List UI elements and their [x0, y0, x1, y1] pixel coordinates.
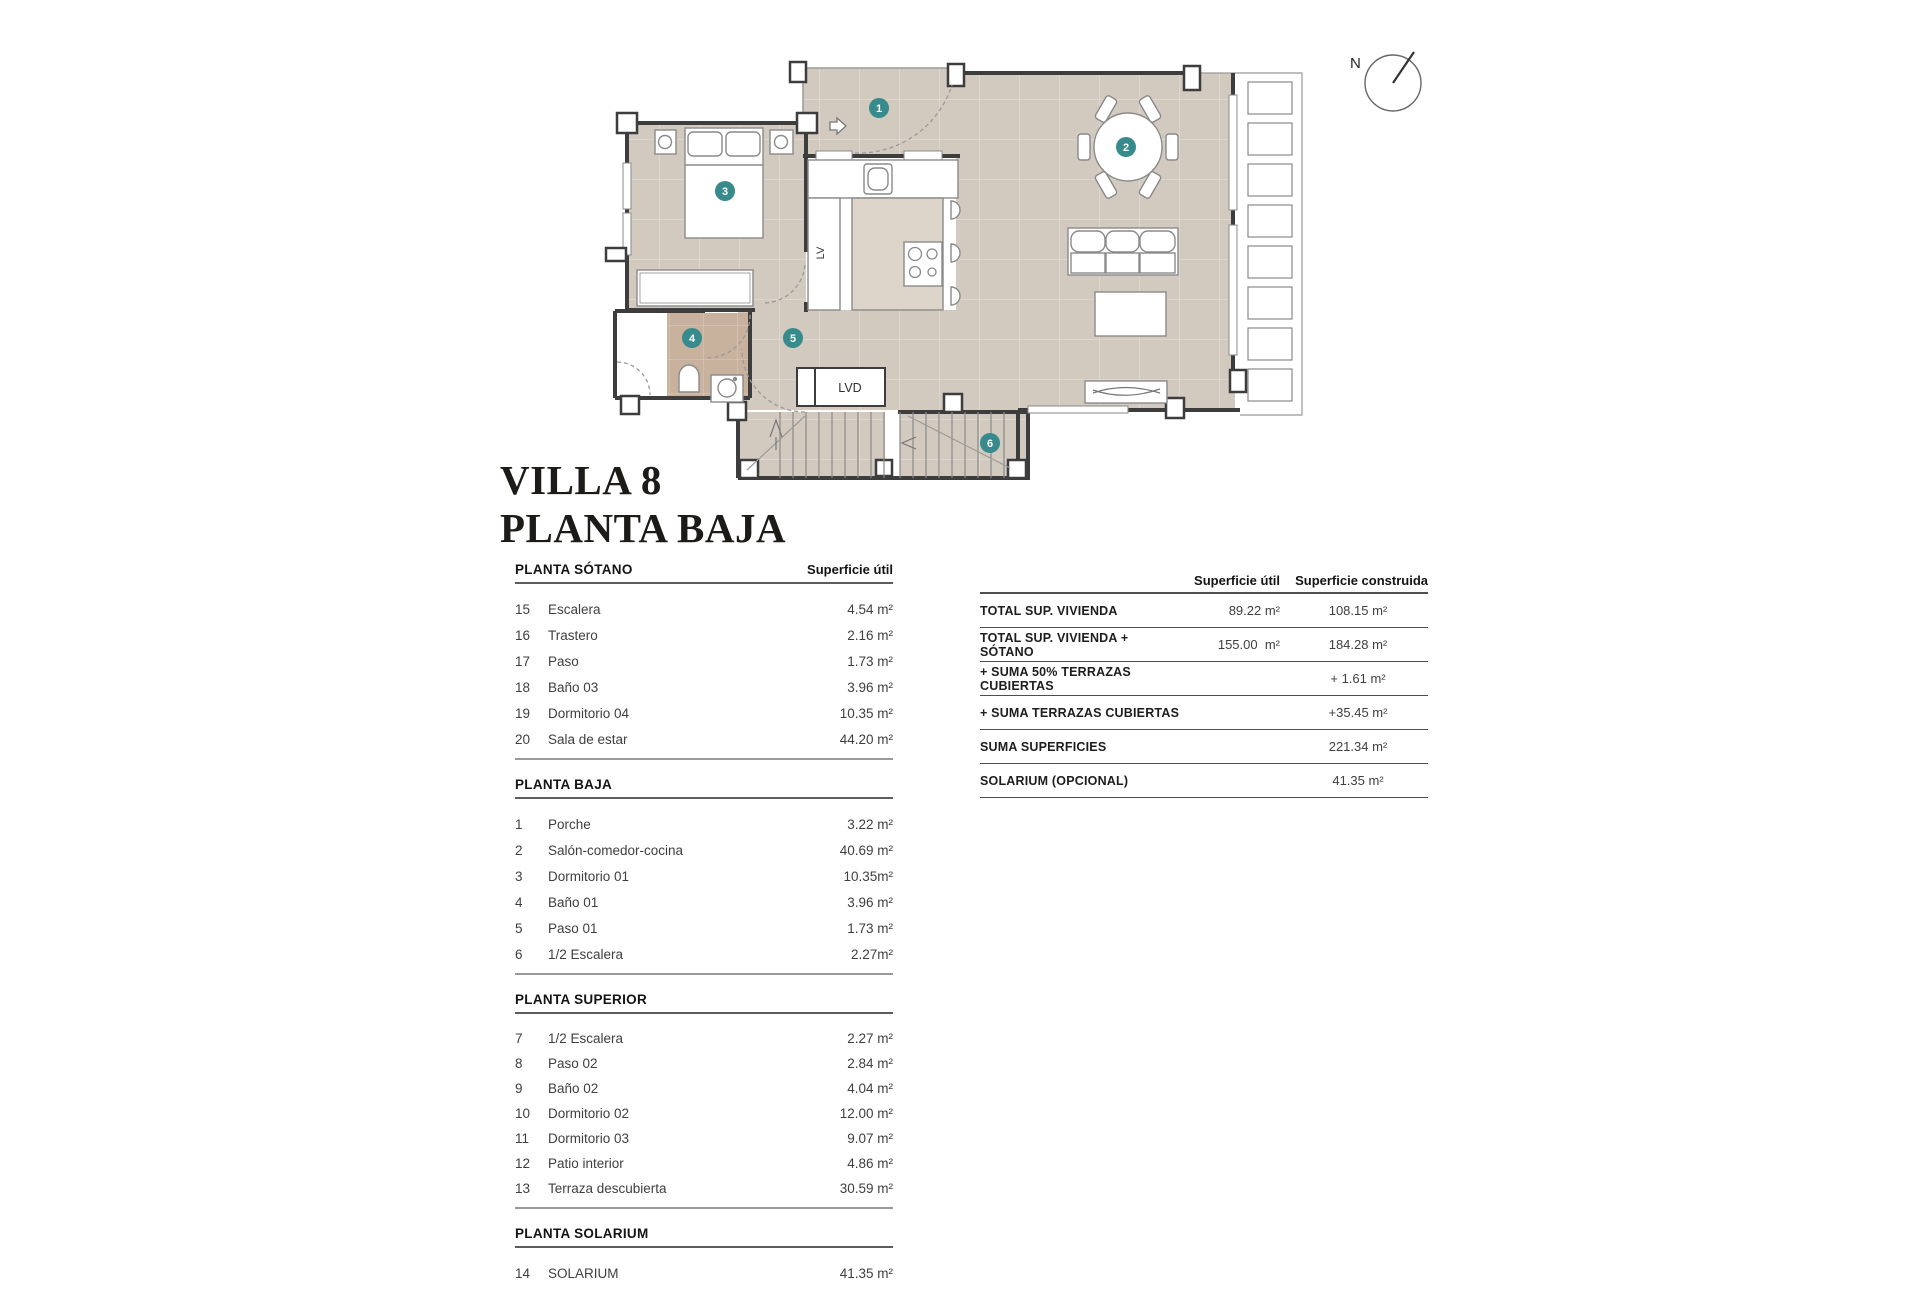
page: { "title": {"line1": "VILLA 8", "line2":…: [0, 0, 1920, 1280]
room-number: 7: [515, 1031, 548, 1046]
room-marker-3: 3: [715, 181, 735, 201]
room-number: 2: [515, 843, 548, 858]
room-row: 1Porche3.22 m²: [515, 811, 893, 837]
totals-row: + SUMA 50% TERRAZAS CUBIERTAS+ 1.61 m²: [980, 662, 1428, 696]
totals-row: + SUMA TERRAZAS CUBIERTAS+35.45 m²: [980, 696, 1428, 730]
title-line-1: VILLA 8: [500, 456, 786, 504]
stove: [904, 242, 942, 286]
room-row: 9Baño 024.04 m²: [515, 1076, 893, 1101]
page-title: VILLA 8 PLANTA BAJA: [500, 456, 786, 552]
room-number: 10: [515, 1106, 548, 1121]
section-title: PLANTA BAJA: [515, 777, 612, 792]
room-name: Baño 02: [548, 1081, 847, 1096]
room-name: SOLARIUM: [548, 1266, 840, 1281]
room-row: 14SOLARIUM41.35 m²: [515, 1260, 893, 1286]
room-area-value: 10.35 m²: [840, 706, 893, 721]
totals-label: TOTAL SUP. VIVIENDA: [980, 604, 1180, 618]
room-marker-4: 4: [682, 328, 702, 348]
totals-construida-value: + 1.61 m²: [1280, 671, 1428, 686]
room-name: Dormitorio 03: [548, 1131, 847, 1146]
room-area-value: 3.22 m²: [847, 817, 893, 832]
room-number: 6: [515, 947, 548, 962]
compass: N: [1338, 18, 1448, 118]
room-number: 19: [515, 706, 548, 721]
room-row: 61/2 Escalera2.27m²: [515, 941, 893, 967]
svg-text:6: 6: [987, 438, 993, 450]
room-area-value: 1.73 m²: [847, 921, 893, 936]
room-row: 19Dormitorio 0410.35 m²: [515, 700, 893, 726]
plan-section: PLANTA SUPERIOR71/2 Escalera2.27 m²8Paso…: [515, 988, 893, 1209]
area-column-header: Superficie útil: [807, 562, 893, 577]
totals-label: TOTAL SUP. VIVIENDA + SÓTANO: [980, 631, 1180, 659]
totals-construida-value: 41.35 m²: [1280, 773, 1428, 788]
wardrobe: [637, 270, 753, 306]
plan-section: PLANTA BAJA1Porche3.22 m²2Salón-comedor-…: [515, 773, 893, 975]
room-area-value: 2.27 m²: [847, 1031, 893, 1046]
room-name: Paso 01: [548, 921, 847, 936]
room-number: 13: [515, 1181, 548, 1196]
totals-row: TOTAL SUP. VIVIENDA89.22 m²108.15 m²: [980, 594, 1428, 628]
totals-table: Superficie útil Superficie construida TO…: [980, 556, 1428, 798]
totals-header-row: Superficie útil Superficie construida: [980, 556, 1428, 594]
room-row: 16Trastero2.16 m²: [515, 622, 893, 648]
totals-row: SUMA SUPERFICIES221.34 m²: [980, 730, 1428, 764]
sofa: [1068, 228, 1178, 275]
room-row: 18Baño 033.96 m²: [515, 674, 893, 700]
totals-construida-value: 184.28 m²: [1280, 637, 1428, 652]
room-number: 20: [515, 732, 548, 747]
room-row: 13Terraza descubierta30.59 m²: [515, 1176, 893, 1201]
floor-plan: LV LVD: [500, 20, 1320, 485]
room-number: 18: [515, 680, 548, 695]
dishwasher-label: LV: [815, 246, 827, 259]
totals-construida-value: 221.34 m²: [1280, 739, 1428, 754]
room-area-value: 44.20 m²: [840, 732, 893, 747]
room-name: Dormitorio 02: [548, 1106, 840, 1121]
totals-util-value: 89.22 m²: [1180, 603, 1280, 618]
totals-label: SUMA SUPERFICIES: [980, 740, 1180, 754]
room-name: Terraza descubierta: [548, 1181, 840, 1196]
compass-icon: N: [1338, 18, 1448, 118]
room-area-value: 41.35 m²: [840, 1266, 893, 1281]
room-number: 5: [515, 921, 548, 936]
room-name: Paso: [548, 654, 847, 669]
room-name: Trastero: [548, 628, 847, 643]
room-number: 4: [515, 895, 548, 910]
totals-label: + SUMA 50% TERRAZAS CUBIERTAS: [980, 665, 1180, 693]
tv-bench: [1085, 381, 1167, 403]
svg-text:5: 5: [790, 333, 796, 345]
plan-section: PLANTA SOLARIUM14SOLARIUM41.35 m²: [515, 1222, 893, 1292]
room-name: Dormitorio 04: [548, 706, 840, 721]
room-number: 15: [515, 602, 548, 617]
coffee-table: [1095, 292, 1166, 336]
room-row: 10Dormitorio 0212.00 m²: [515, 1101, 893, 1126]
room-row: 12Patio interior4.86 m²: [515, 1151, 893, 1176]
kitchen-island: [852, 198, 943, 310]
room-number: 9: [515, 1081, 548, 1096]
room-name: Sala de estar: [548, 732, 840, 747]
totals-row: SOLARIUM (OPCIONAL)41.35 m²: [980, 764, 1428, 798]
totals-construida-value: 108.15 m²: [1280, 603, 1428, 618]
room-area-value: 12.00 m²: [840, 1106, 893, 1121]
section-header: PLANTA SOLARIUM: [515, 1222, 893, 1248]
room-marker-6: 6: [980, 433, 1000, 453]
room-name: Paso 02: [548, 1056, 847, 1071]
room-number: 12: [515, 1156, 548, 1171]
room-name: Salón-comedor-cocina: [548, 843, 840, 858]
room-area-value: 4.04 m²: [847, 1081, 893, 1096]
totals-label: SOLARIUM (OPCIONAL): [980, 774, 1180, 788]
section-title: PLANTA SUPERIOR: [515, 992, 647, 1007]
room-row: 3Dormitorio 0110.35m²: [515, 863, 893, 889]
toilet: [679, 365, 699, 392]
room-row: 11Dormitorio 039.07 m²: [515, 1126, 893, 1151]
section-header: PLANTA BAJA: [515, 773, 893, 799]
col-superficie-construida: Superficie construida: [1280, 573, 1428, 588]
room-area-value: 9.07 m²: [847, 1131, 893, 1146]
totals-construida-value: +35.45 m²: [1280, 705, 1428, 720]
room-number: 14: [515, 1266, 548, 1281]
section-title: PLANTA SOLARIUM: [515, 1226, 649, 1241]
floor-plan-drawing: LV LVD: [500, 20, 1320, 485]
section-header: PLANTA SÓTANOSuperficie útil: [515, 558, 893, 584]
title-line-2: PLANTA BAJA: [500, 504, 786, 552]
room-number: 3: [515, 869, 548, 884]
room-name: Baño 01: [548, 895, 847, 910]
svg-text:2: 2: [1123, 142, 1129, 154]
room-marker-1: 1: [869, 98, 889, 118]
svg-text:1: 1: [876, 103, 882, 115]
room-name: Patio interior: [548, 1156, 847, 1171]
room-number: 1: [515, 817, 548, 832]
room-area-value: 40.69 m²: [840, 843, 893, 858]
room-number: 11: [515, 1131, 548, 1146]
room-name: Baño 03: [548, 680, 847, 695]
room-name: Escalera: [548, 602, 847, 617]
laundry-label: LVD: [838, 381, 861, 395]
room-area-value: 30.59 m²: [840, 1181, 893, 1196]
room-area-value: 4.86 m²: [847, 1156, 893, 1171]
room-row: 71/2 Escalera2.27 m²: [515, 1026, 893, 1051]
col-superficie-util: Superficie útil: [1180, 573, 1280, 588]
totals-row: TOTAL SUP. VIVIENDA + SÓTANO155.00 m²184…: [980, 628, 1428, 662]
svg-text:3: 3: [722, 186, 728, 198]
section-divider: [515, 973, 893, 975]
room-area-value: 10.35m²: [843, 869, 893, 884]
laundry-closet: LVD: [797, 368, 885, 406]
section-divider: [515, 758, 893, 760]
bathroom-sink: [711, 375, 743, 402]
room-row: 8Paso 022.84 m²: [515, 1051, 893, 1076]
room-marker-2: 2: [1116, 137, 1136, 157]
room-row: 2Salón-comedor-cocina40.69 m²: [515, 837, 893, 863]
totals-label: + SUMA TERRAZAS CUBIERTAS: [980, 706, 1180, 720]
room-name: Porche: [548, 817, 847, 832]
section-title: PLANTA SÓTANO: [515, 562, 633, 577]
compass-north-label: N: [1350, 55, 1361, 72]
room-number: 8: [515, 1056, 548, 1071]
room-area-value: 3.96 m²: [847, 895, 893, 910]
room-area-value: 4.54 m²: [847, 602, 893, 617]
room-area-value: 2.84 m²: [847, 1056, 893, 1071]
room-area-value: 2.16 m²: [847, 628, 893, 643]
room-row: 5Paso 011.73 m²: [515, 915, 893, 941]
section-header: PLANTA SUPERIOR: [515, 988, 893, 1014]
room-marker-5: 5: [783, 328, 803, 348]
room-area-value: 2.27m²: [851, 947, 893, 962]
room-areas-table: PLANTA SÓTANOSuperficie útil15Escalera4.…: [515, 558, 893, 1292]
room-area-value: 3.96 m²: [847, 680, 893, 695]
room-number: 17: [515, 654, 548, 669]
room-name: 1/2 Escalera: [548, 1031, 847, 1046]
room-name: 1/2 Escalera: [548, 947, 851, 962]
room-area-value: 1.73 m²: [847, 654, 893, 669]
room-row: 15Escalera4.54 m²: [515, 596, 893, 622]
room-row: 4Baño 013.96 m²: [515, 889, 893, 915]
totals-util-value: 155.00 m²: [1180, 637, 1280, 652]
room-row: 20Sala de estar44.20 m²: [515, 726, 893, 752]
svg-text:4: 4: [689, 333, 696, 345]
section-divider: [515, 1207, 893, 1209]
room-row: 17Paso1.73 m²: [515, 648, 893, 674]
room-number: 16: [515, 628, 548, 643]
plan-section: PLANTA SÓTANOSuperficie útil15Escalera4.…: [515, 558, 893, 760]
room-name: Dormitorio 01: [548, 869, 843, 884]
